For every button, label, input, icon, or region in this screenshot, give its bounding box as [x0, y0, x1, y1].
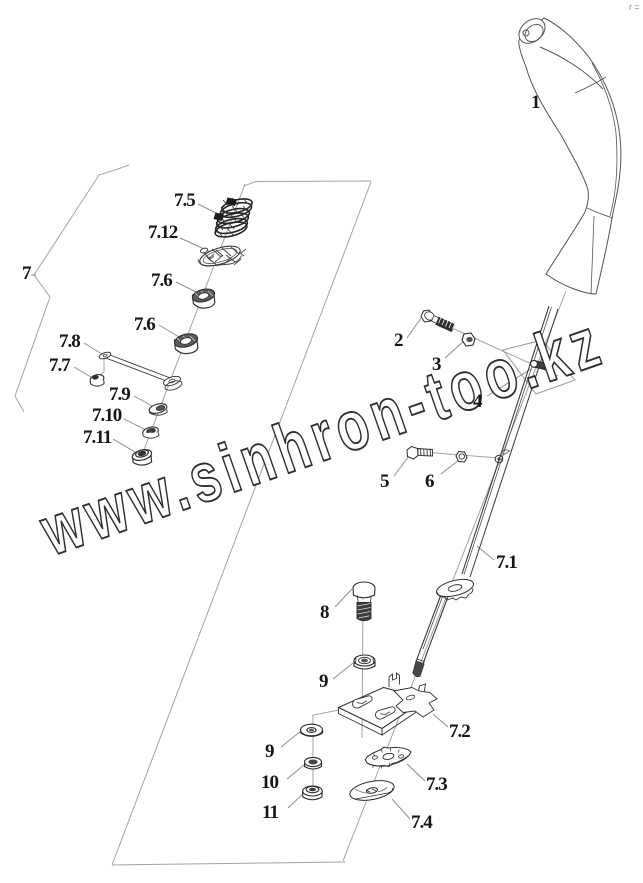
svg-text:7.10: 7.10	[92, 405, 122, 426]
svg-text:7.4: 7.4	[411, 812, 433, 833]
svg-text:9: 9	[319, 671, 328, 692]
svg-text:6: 6	[425, 471, 434, 492]
svg-text:7.7: 7.7	[49, 355, 71, 376]
svg-text:10: 10	[261, 772, 279, 793]
svg-text:7.6: 7.6	[151, 270, 172, 291]
svg-text:7: 7	[22, 263, 32, 284]
svg-text:7.8: 7.8	[59, 331, 80, 352]
svg-text:7.5: 7.5	[174, 190, 195, 211]
svg-text:7.3: 7.3	[426, 774, 447, 795]
svg-text:2: 2	[394, 330, 403, 351]
svg-text:7.6: 7.6	[134, 314, 155, 335]
svg-text:7.9: 7.9	[109, 384, 130, 405]
svg-text:7.12: 7.12	[148, 222, 178, 243]
svg-text:9: 9	[265, 741, 274, 762]
svg-text:11: 11	[262, 802, 278, 823]
svg-text:7.1: 7.1	[496, 552, 517, 573]
svg-text:3: 3	[432, 354, 441, 375]
svg-text:1: 1	[531, 92, 540, 113]
svg-text:r =: r =	[629, 2, 640, 12]
svg-text:7.2: 7.2	[449, 721, 470, 742]
svg-text:8: 8	[320, 602, 329, 623]
svg-text:www.sinhron-too.kz: www.sinhron-too.kz	[31, 302, 615, 571]
svg-text:5: 5	[380, 471, 389, 492]
svg-text:7.11: 7.11	[83, 427, 112, 448]
